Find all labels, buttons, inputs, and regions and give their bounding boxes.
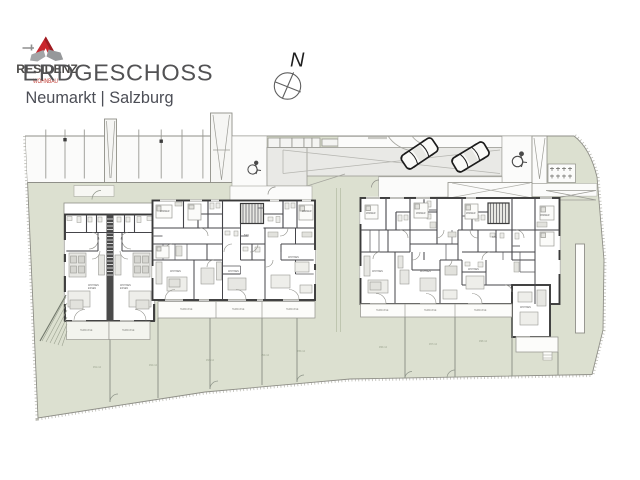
svg-text:ESSEN: ESSEN	[88, 287, 96, 290]
svg-text:ESSEN: ESSEN	[120, 287, 128, 290]
svg-text:TERRASSE: TERRASSE	[474, 309, 487, 312]
svg-text:ZIMMER: ZIMMER	[302, 210, 312, 213]
svg-text:ERDGESCHOSS: ERDGESCHOSS	[23, 60, 213, 86]
svg-text:BAD: BAD	[244, 234, 249, 237]
svg-text:ZIMMER: ZIMMER	[416, 212, 426, 215]
svg-text:455 m2: 455 m2	[297, 350, 306, 353]
svg-text:TERRASSE: TERRASSE	[286, 308, 299, 311]
svg-text:ZIMMER: ZIMMER	[160, 210, 170, 213]
svg-text:WOHNEN: WOHNEN	[228, 270, 239, 273]
svg-text:457 m2: 457 m2	[429, 343, 438, 346]
svg-text:TERRASSE: TERRASSE	[232, 308, 245, 311]
svg-text:WOHNEN: WOHNEN	[288, 256, 299, 259]
svg-text:ZIMMER: ZIMMER	[466, 212, 476, 215]
svg-text:WOHNEN: WOHNEN	[372, 270, 383, 273]
svg-text:TERRASSE: TERRASSE	[376, 309, 389, 312]
svg-text:452 m2: 452 m2	[149, 364, 158, 367]
svg-text:453 m2: 453 m2	[206, 359, 215, 362]
svg-text:ZIMMER: ZIMMER	[366, 212, 376, 215]
svg-text:WOHNEN: WOHNEN	[420, 270, 431, 273]
svg-text:WOHNEN: WOHNEN	[170, 270, 181, 273]
svg-text:454 m2: 454 m2	[261, 354, 270, 357]
svg-text:STG: STG	[492, 236, 497, 239]
svg-text:TERRASSE: TERRASSE	[424, 309, 437, 312]
svg-text:Neumarkt | Salzburg: Neumarkt | Salzburg	[26, 89, 174, 107]
svg-text:451 m2: 451 m2	[93, 366, 102, 369]
svg-text:N: N	[290, 50, 305, 72]
svg-text:458 m2: 458 m2	[479, 340, 488, 343]
svg-text:456 m2: 456 m2	[379, 346, 388, 349]
svg-text:ZIMMER: ZIMMER	[540, 214, 550, 217]
svg-text:TERRASSE: TERRASSE	[122, 329, 135, 332]
svg-text:WOHNEN: WOHNEN	[520, 306, 531, 309]
svg-text:TERRASSE: TERRASSE	[180, 308, 193, 311]
svg-text:TERRASSE: TERRASSE	[80, 329, 93, 332]
svg-text:WOHNEN: WOHNEN	[468, 268, 479, 271]
